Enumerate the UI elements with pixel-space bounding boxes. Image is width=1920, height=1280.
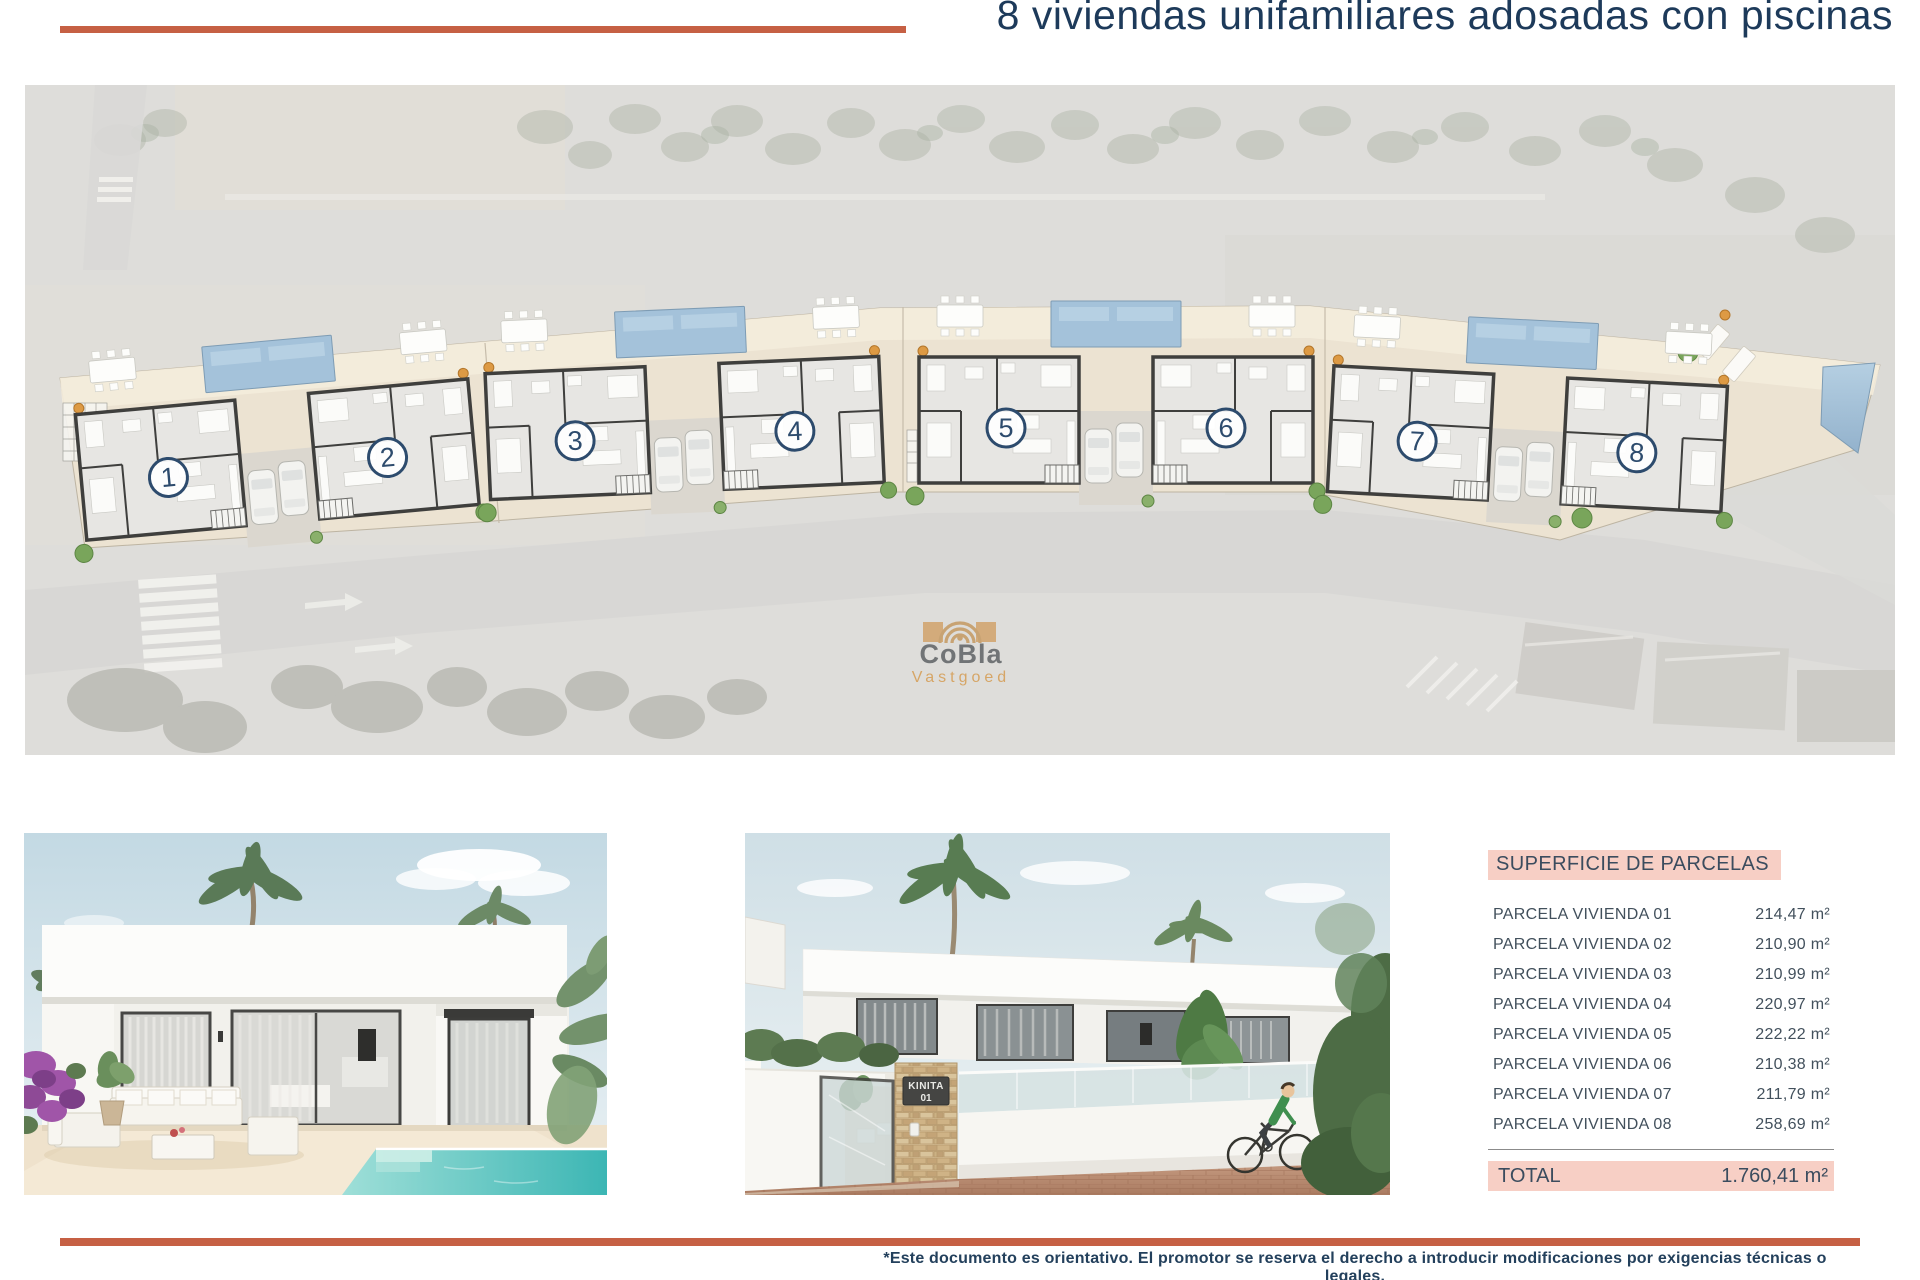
page-title: 8 viviendas unifamiliares adosadas con p… bbox=[997, 0, 1893, 39]
row-label: PARCELA VIVIENDA 08 bbox=[1493, 1116, 1672, 1134]
footer-accent-bar bbox=[60, 1238, 1860, 1246]
unit-number: 3 bbox=[567, 425, 583, 456]
row-label: PARCELA VIVIENDA 03 bbox=[1493, 966, 1672, 984]
site-plan-svg: 12345678 CoBla Vastgoed bbox=[25, 85, 1895, 755]
window-center bbox=[232, 1011, 400, 1125]
unit-number: 1 bbox=[160, 462, 178, 493]
table-row: PARCELA VIVIENDA 07 211,79 m² bbox=[1488, 1080, 1834, 1110]
row-value: 210,99 m² bbox=[1755, 966, 1830, 984]
total-value: 1.760,41 m² bbox=[1721, 1165, 1828, 1188]
unit-number: 4 bbox=[787, 416, 803, 447]
table-row: PARCELA VIVIENDA 02 210,90 m² bbox=[1488, 930, 1834, 960]
unit-number: 2 bbox=[379, 442, 397, 473]
row-label: PARCELA VIVIENDA 02 bbox=[1493, 936, 1672, 954]
table-row: PARCELA VIVIENDA 05 222,22 m² bbox=[1488, 1020, 1834, 1050]
table-row: PARCELA VIVIENDA 08 258,69 m² bbox=[1488, 1110, 1834, 1140]
row-label: PARCELA VIVIENDA 05 bbox=[1493, 1026, 1672, 1044]
render-street-view: KINITA 01 bbox=[745, 833, 1390, 1195]
sign-line1: KINITA bbox=[908, 1081, 944, 1092]
row-value: 210,90 m² bbox=[1755, 936, 1830, 954]
row-value: 222,22 m² bbox=[1755, 1026, 1830, 1044]
wall-lamp bbox=[218, 1031, 223, 1042]
table-row: PARCELA VIVIENDA 04 220,97 m² bbox=[1488, 990, 1834, 1020]
sign-line2: 01 bbox=[920, 1093, 932, 1104]
window-right bbox=[444, 1009, 534, 1127]
row-label: PARCELA VIVIENDA 04 bbox=[1493, 996, 1672, 1014]
table-row: PARCELA VIVIENDA 03 210,99 m² bbox=[1488, 960, 1834, 990]
row-value: 258,69 m² bbox=[1755, 1116, 1830, 1134]
surface-table-divider bbox=[1488, 1149, 1834, 1150]
watermark-subtitle: Vastgoed bbox=[912, 669, 1010, 686]
render-villa-pool bbox=[24, 833, 607, 1195]
surface-table-total-row: TOTAL 1.760,41 m² bbox=[1488, 1161, 1834, 1191]
row-value: 211,79 m² bbox=[1756, 1086, 1830, 1104]
site-plan-image: 12345678 CoBla Vastgoed bbox=[25, 85, 1895, 755]
brochure-page: 8 viviendas unifamiliares adosadas con p… bbox=[0, 0, 1920, 1280]
table-row: PARCELA VIVIENDA 01 214,47 m² bbox=[1488, 900, 1834, 930]
table-row: PARCELA VIVIENDA 06 210,38 m² bbox=[1488, 1050, 1834, 1080]
surface-table-title: SUPERFICIE DE PARCELAS bbox=[1488, 850, 1781, 880]
row-value: 220,97 m² bbox=[1755, 996, 1830, 1014]
unit-number: 5 bbox=[998, 413, 1013, 443]
footer-disclaimer: *Este documento es orientativo. El promo… bbox=[880, 1250, 1830, 1280]
row-value: 210,38 m² bbox=[1755, 1056, 1830, 1074]
unit-number: 7 bbox=[1409, 426, 1426, 457]
doorbell bbox=[910, 1123, 919, 1136]
header-accent-line bbox=[60, 26, 906, 33]
watermark-brand: CoBla bbox=[919, 639, 1002, 669]
stone-pillar: KINITA 01 bbox=[895, 1063, 957, 1195]
row-label: PARCELA VIVIENDA 01 bbox=[1493, 906, 1672, 924]
surface-table-rows: PARCELA VIVIENDA 01 214,47 m² PARCELA VI… bbox=[1488, 900, 1834, 1140]
pool bbox=[342, 1149, 607, 1195]
unit-number: 8 bbox=[1629, 437, 1646, 468]
row-label: PARCELA VIVIENDA 07 bbox=[1493, 1086, 1672, 1104]
surface-table: SUPERFICIE DE PARCELAS PARCELA VIVIENDA … bbox=[1488, 850, 1834, 1191]
unit-number: 6 bbox=[1218, 413, 1233, 443]
distant-house bbox=[745, 917, 785, 989]
row-label: PARCELA VIVIENDA 06 bbox=[1493, 1056, 1672, 1074]
total-label: TOTAL bbox=[1498, 1165, 1561, 1188]
entry-gate bbox=[821, 1075, 893, 1195]
row-value: 214,47 m² bbox=[1755, 906, 1830, 924]
footer-disclaimer-es: *Este documento es orientativo. El promo… bbox=[880, 1250, 1830, 1280]
